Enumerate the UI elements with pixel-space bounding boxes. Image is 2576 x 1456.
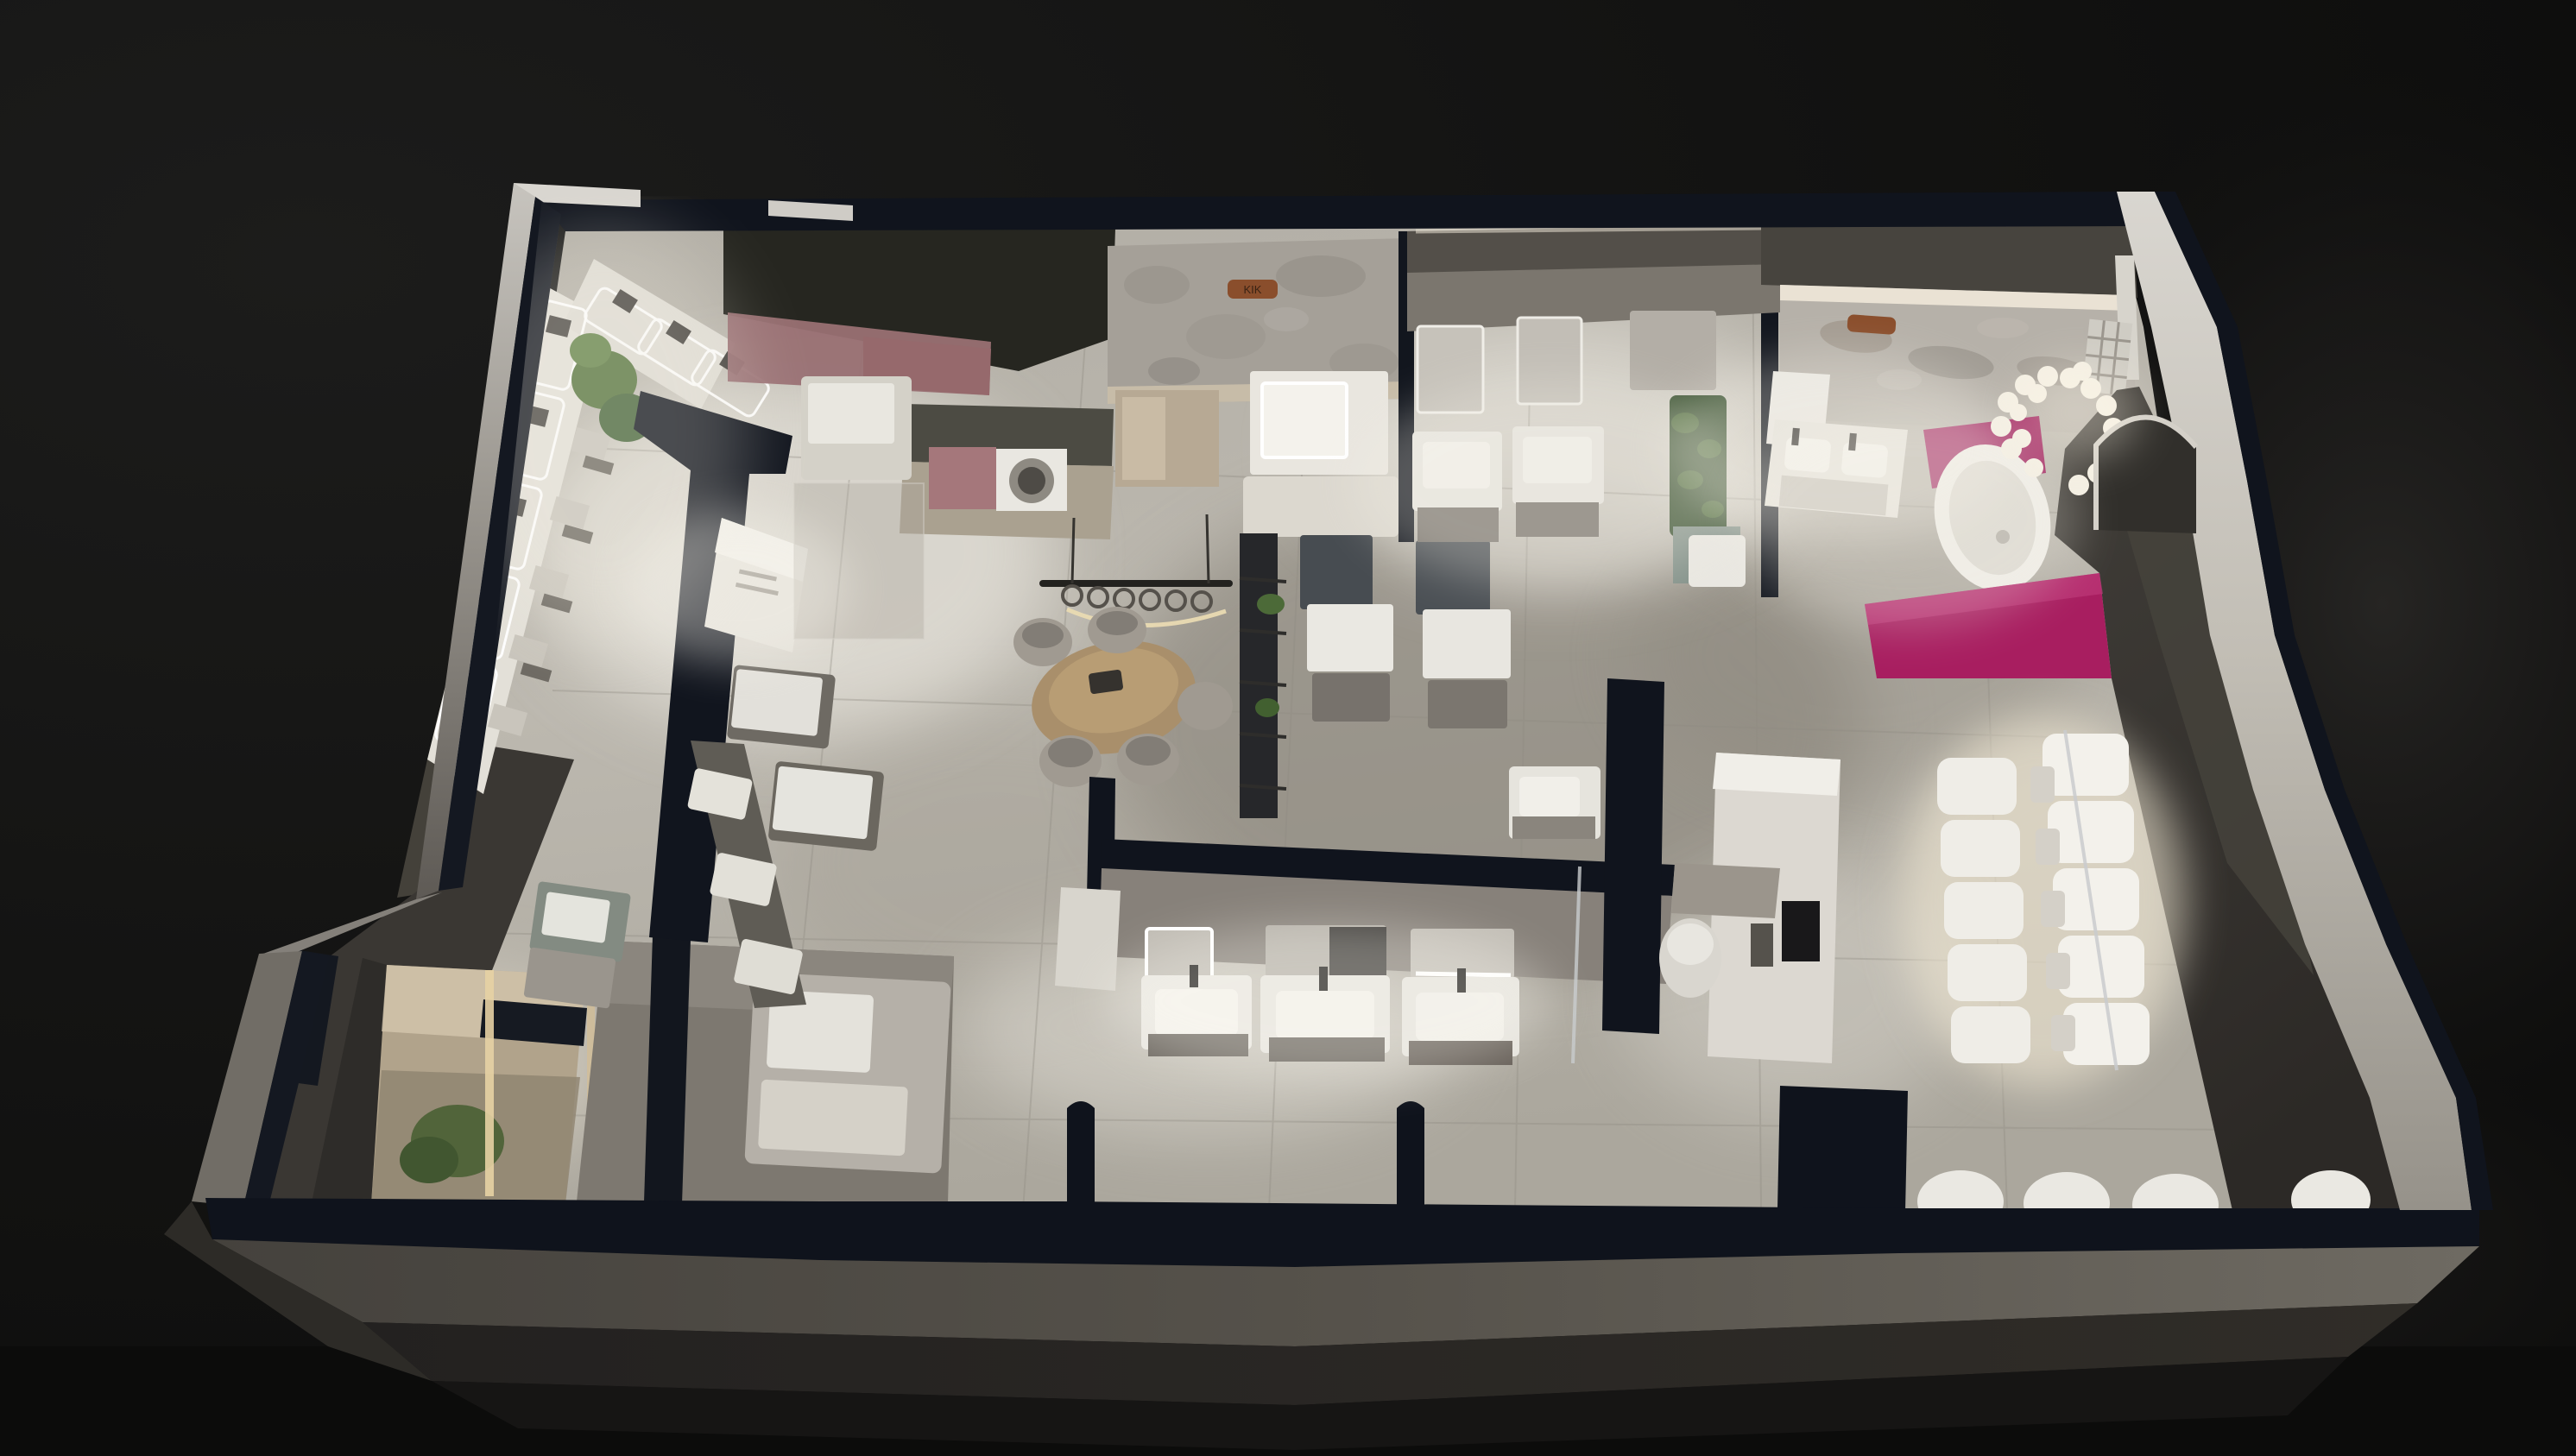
svg-text:KIK: KIK xyxy=(1244,283,1262,296)
